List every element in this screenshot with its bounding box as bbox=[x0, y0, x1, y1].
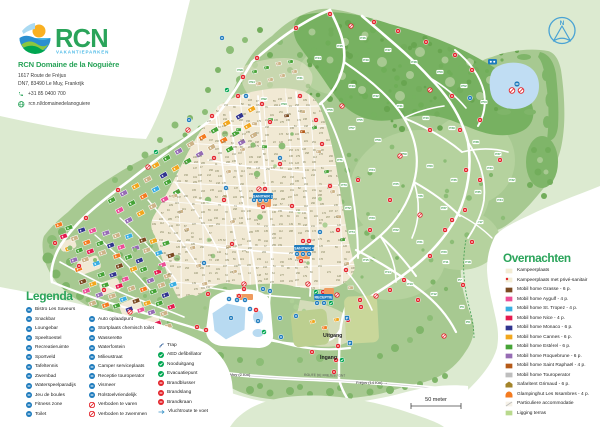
svg-text:230: 230 bbox=[286, 119, 291, 122]
svg-text:284: 284 bbox=[262, 251, 267, 254]
svg-text:P50: P50 bbox=[437, 70, 443, 74]
svg-text:263: 263 bbox=[290, 183, 295, 186]
svg-text:258: 258 bbox=[295, 104, 300, 107]
svg-text:135: 135 bbox=[264, 230, 269, 233]
svg-text:273: 273 bbox=[319, 132, 324, 135]
svg-text:P47: P47 bbox=[385, 48, 391, 52]
svg-text:P: P bbox=[346, 316, 349, 321]
svg-text:101: 101 bbox=[193, 176, 198, 179]
svg-text:276: 276 bbox=[303, 190, 308, 193]
svg-text:P58: P58 bbox=[375, 138, 381, 142]
svg-text:213: 213 bbox=[207, 174, 212, 177]
svg-text:251: 251 bbox=[312, 141, 317, 144]
svg-text:P25: P25 bbox=[393, 182, 399, 186]
svg-text:252: 252 bbox=[289, 252, 294, 255]
svg-text:173: 173 bbox=[279, 133, 284, 136]
svg-text:113: 113 bbox=[313, 156, 317, 159]
svg-text:236: 236 bbox=[247, 210, 252, 213]
svg-text:174: 174 bbox=[297, 119, 302, 122]
svg-text:242: 242 bbox=[214, 217, 219, 220]
svg-text:288: 288 bbox=[289, 230, 294, 233]
svg-text:125: 125 bbox=[319, 245, 324, 248]
svg-text:P98: P98 bbox=[237, 68, 243, 72]
svg-text:298: 298 bbox=[177, 240, 182, 243]
svg-text:119: 119 bbox=[240, 258, 244, 261]
svg-text:253: 253 bbox=[282, 176, 287, 179]
svg-text:244: 244 bbox=[223, 118, 228, 121]
svg-text:234: 234 bbox=[226, 280, 231, 283]
svg-text:255: 255 bbox=[272, 244, 277, 247]
svg-text:P23: P23 bbox=[369, 216, 375, 220]
svg-text:197: 197 bbox=[177, 196, 182, 199]
svg-text:P71: P71 bbox=[337, 158, 343, 162]
svg-text:232: 232 bbox=[321, 121, 326, 124]
svg-text:207: 207 bbox=[256, 111, 261, 114]
svg-text:P8: P8 bbox=[466, 320, 470, 324]
svg-text:266: 266 bbox=[215, 140, 220, 143]
svg-text:285: 285 bbox=[168, 218, 173, 221]
svg-text:P46: P46 bbox=[360, 36, 366, 40]
svg-text:235: 235 bbox=[246, 131, 251, 134]
svg-text:201: 201 bbox=[318, 265, 323, 268]
svg-text:173: 173 bbox=[312, 230, 317, 233]
svg-text:151: 151 bbox=[232, 251, 237, 254]
svg-text:262: 262 bbox=[186, 239, 191, 242]
svg-text:P36: P36 bbox=[451, 178, 457, 182]
svg-text:174: 174 bbox=[295, 149, 300, 152]
svg-text:116: 116 bbox=[326, 139, 330, 142]
svg-text:270: 270 bbox=[194, 288, 199, 291]
svg-text:288: 288 bbox=[226, 161, 231, 164]
svg-text:P48: P48 bbox=[411, 60, 417, 64]
svg-text:P40: P40 bbox=[423, 116, 429, 120]
svg-text:255: 255 bbox=[272, 233, 277, 236]
svg-text:253: 253 bbox=[185, 267, 190, 270]
svg-text:P37: P37 bbox=[495, 152, 501, 156]
svg-text:286: 286 bbox=[248, 247, 253, 250]
svg-text:185: 185 bbox=[320, 203, 325, 206]
svg-text:125: 125 bbox=[176, 246, 181, 249]
svg-text:232: 232 bbox=[249, 173, 254, 176]
svg-text:287: 287 bbox=[328, 170, 333, 173]
svg-text:237: 237 bbox=[191, 209, 196, 212]
svg-text:P31: P31 bbox=[297, 76, 303, 80]
svg-text:169: 169 bbox=[249, 156, 254, 159]
svg-text:165: 165 bbox=[192, 189, 197, 192]
svg-text:179: 179 bbox=[318, 238, 323, 241]
svg-text:P57: P57 bbox=[349, 126, 355, 130]
svg-text:132: 132 bbox=[208, 219, 213, 222]
svg-text:P6: P6 bbox=[460, 305, 464, 309]
svg-text:126: 126 bbox=[343, 245, 348, 248]
svg-text:154: 154 bbox=[224, 104, 229, 107]
svg-text:298: 298 bbox=[233, 208, 238, 211]
svg-text:281: 281 bbox=[248, 146, 253, 149]
svg-text:296: 296 bbox=[240, 183, 245, 186]
svg-text:104: 104 bbox=[198, 155, 203, 158]
svg-text:250: 250 bbox=[314, 280, 319, 283]
svg-text:118: 118 bbox=[304, 205, 308, 208]
svg-text:186: 186 bbox=[312, 161, 317, 164]
svg-text:167: 167 bbox=[198, 180, 203, 183]
svg-text:167: 167 bbox=[262, 140, 267, 143]
svg-text:291: 291 bbox=[160, 231, 165, 234]
svg-text:207: 207 bbox=[295, 279, 300, 282]
svg-text:237: 237 bbox=[222, 125, 227, 128]
svg-text:105: 105 bbox=[274, 119, 279, 122]
svg-text:194: 194 bbox=[232, 153, 237, 156]
svg-text:128: 128 bbox=[302, 148, 307, 151]
svg-text:221: 221 bbox=[304, 140, 309, 143]
svg-text:P: P bbox=[349, 341, 352, 346]
svg-text:181: 181 bbox=[270, 114, 275, 117]
svg-text:120: 120 bbox=[337, 224, 342, 227]
svg-text:175: 175 bbox=[218, 239, 223, 242]
svg-text:215: 215 bbox=[278, 98, 283, 101]
svg-text:150: 150 bbox=[280, 261, 285, 264]
svg-text:241: 241 bbox=[312, 189, 317, 192]
svg-text:290: 290 bbox=[296, 272, 301, 275]
svg-text:233: 233 bbox=[247, 240, 252, 243]
svg-text:Uitgang: Uitgang bbox=[323, 333, 342, 339]
svg-text:260: 260 bbox=[184, 195, 189, 198]
svg-text:206: 206 bbox=[262, 211, 267, 214]
svg-text:P24: P24 bbox=[369, 168, 375, 172]
svg-text:P7: P7 bbox=[458, 278, 462, 282]
svg-text:P72: P72 bbox=[345, 206, 351, 210]
svg-text:290: 290 bbox=[311, 202, 316, 205]
svg-text:141: 141 bbox=[305, 169, 310, 172]
svg-text:163: 163 bbox=[214, 209, 219, 212]
svg-text:P49: P49 bbox=[363, 58, 369, 62]
svg-text:295: 295 bbox=[200, 267, 205, 270]
svg-text:50 meter: 50 meter bbox=[425, 397, 447, 403]
svg-text:P35: P35 bbox=[475, 190, 481, 194]
svg-text:200: 200 bbox=[312, 251, 317, 254]
svg-text:197: 197 bbox=[209, 139, 214, 142]
svg-text:171: 171 bbox=[302, 177, 307, 180]
svg-text:274: 274 bbox=[334, 216, 339, 219]
svg-text:288: 288 bbox=[239, 119, 244, 122]
svg-text:267: 267 bbox=[326, 216, 331, 219]
svg-text:219: 219 bbox=[257, 258, 262, 261]
svg-text:187: 187 bbox=[215, 148, 220, 151]
svg-text:268: 268 bbox=[281, 198, 286, 201]
svg-text:209: 209 bbox=[193, 181, 198, 184]
svg-text:299: 299 bbox=[305, 230, 310, 233]
svg-text:231: 231 bbox=[289, 280, 294, 283]
svg-text:VAKANTIEPARKEN: VAKANTIEPARKEN bbox=[56, 50, 109, 55]
svg-text:129: 129 bbox=[177, 211, 182, 214]
svg-text:156: 156 bbox=[184, 174, 189, 177]
svg-text:165: 165 bbox=[215, 170, 220, 173]
svg-text:222: 222 bbox=[159, 218, 164, 221]
svg-text:165: 165 bbox=[295, 180, 300, 183]
svg-text:266: 266 bbox=[280, 190, 285, 193]
svg-text:188: 188 bbox=[242, 113, 247, 116]
svg-text:143: 143 bbox=[264, 278, 269, 281]
svg-text:298: 298 bbox=[305, 152, 310, 155]
svg-text:132: 132 bbox=[302, 212, 307, 215]
svg-text:P22: P22 bbox=[393, 228, 399, 232]
svg-text:123: 123 bbox=[295, 162, 300, 165]
svg-text:P38: P38 bbox=[473, 140, 479, 144]
svg-text:183: 183 bbox=[280, 280, 285, 283]
svg-text:129: 129 bbox=[330, 231, 335, 234]
svg-text:P93: P93 bbox=[281, 102, 287, 106]
svg-text:174: 174 bbox=[239, 202, 244, 205]
svg-text:271: 271 bbox=[175, 216, 180, 219]
svg-text:164: 164 bbox=[289, 211, 294, 214]
svg-text:205: 205 bbox=[247, 264, 252, 267]
svg-text:106: 106 bbox=[194, 272, 199, 275]
svg-text:128: 128 bbox=[239, 222, 244, 225]
svg-text:167: 167 bbox=[209, 225, 214, 228]
svg-text:226: 226 bbox=[201, 211, 206, 214]
svg-text:P18: P18 bbox=[465, 260, 471, 264]
svg-text:184: 184 bbox=[208, 239, 213, 242]
svg-text:153: 153 bbox=[290, 176, 295, 179]
svg-text:P11: P11 bbox=[443, 260, 449, 264]
svg-text:123: 123 bbox=[272, 190, 277, 193]
svg-text:261: 261 bbox=[216, 223, 221, 226]
svg-text:189: 189 bbox=[225, 259, 230, 262]
svg-text:176: 176 bbox=[222, 182, 227, 185]
svg-text:160: 160 bbox=[182, 246, 187, 249]
svg-text:245: 245 bbox=[334, 204, 339, 207]
svg-text:181: 181 bbox=[216, 268, 221, 271]
svg-text:184: 184 bbox=[201, 287, 206, 290]
svg-text:119: 119 bbox=[182, 208, 186, 211]
svg-text:155: 155 bbox=[278, 210, 283, 213]
svg-text:P94: P94 bbox=[249, 80, 255, 84]
svg-text:193: 193 bbox=[298, 232, 303, 235]
svg-text:296: 296 bbox=[209, 169, 214, 172]
svg-text:P32: P32 bbox=[509, 178, 515, 182]
svg-text:149: 149 bbox=[289, 223, 294, 226]
svg-text:275: 275 bbox=[280, 121, 285, 124]
svg-text:122: 122 bbox=[294, 194, 299, 197]
svg-text:185: 185 bbox=[185, 279, 190, 282]
svg-text:181: 181 bbox=[338, 239, 343, 242]
svg-text:P74: P74 bbox=[349, 230, 355, 234]
svg-text:209: 209 bbox=[328, 175, 333, 178]
svg-text:279: 279 bbox=[296, 155, 301, 158]
svg-text:123: 123 bbox=[174, 232, 179, 235]
svg-text:RECEPTIE: RECEPTIE bbox=[315, 295, 334, 299]
svg-text:223: 223 bbox=[223, 132, 228, 135]
svg-text:253: 253 bbox=[289, 149, 294, 152]
svg-text:250: 250 bbox=[266, 168, 271, 171]
svg-text:167: 167 bbox=[223, 265, 228, 268]
svg-text:260: 260 bbox=[329, 155, 334, 158]
svg-text:288: 288 bbox=[318, 194, 323, 197]
svg-text:277: 277 bbox=[280, 274, 285, 277]
svg-text:197: 197 bbox=[329, 210, 334, 213]
svg-text:112: 112 bbox=[279, 230, 283, 233]
svg-text:112: 112 bbox=[160, 222, 164, 225]
svg-text:156: 156 bbox=[246, 120, 251, 123]
svg-text:P55: P55 bbox=[357, 118, 363, 122]
svg-text:P41: P41 bbox=[397, 104, 403, 108]
svg-text:285: 285 bbox=[233, 146, 238, 149]
svg-text:P34: P34 bbox=[497, 198, 503, 202]
svg-text:SANITAIR 2: SANITAIR 2 bbox=[253, 194, 273, 198]
svg-text:229: 229 bbox=[169, 204, 174, 207]
svg-text:198: 198 bbox=[273, 204, 278, 207]
svg-text:114: 114 bbox=[241, 170, 245, 173]
svg-text:152: 152 bbox=[336, 279, 341, 282]
svg-text:P56: P56 bbox=[327, 108, 333, 112]
svg-text:203: 203 bbox=[194, 161, 199, 164]
svg-text:P12: P12 bbox=[431, 292, 437, 296]
svg-text:148: 148 bbox=[257, 274, 262, 277]
svg-text:213: 213 bbox=[311, 174, 316, 177]
svg-text:P73: P73 bbox=[341, 183, 347, 187]
svg-text:269: 269 bbox=[175, 258, 180, 261]
svg-text:P21: P21 bbox=[417, 240, 423, 244]
svg-text:142: 142 bbox=[206, 265, 211, 268]
svg-text:163: 163 bbox=[240, 139, 245, 142]
svg-text:206: 206 bbox=[218, 152, 223, 155]
svg-text:241: 241 bbox=[311, 225, 316, 228]
svg-text:255: 255 bbox=[320, 127, 325, 130]
svg-text:P27: P27 bbox=[441, 206, 447, 210]
svg-text:177: 177 bbox=[305, 132, 310, 135]
svg-text:224: 224 bbox=[218, 190, 223, 193]
svg-text:223: 223 bbox=[248, 99, 253, 102]
svg-text:110: 110 bbox=[176, 224, 180, 227]
svg-text:SANITAIR 4: SANITAIR 4 bbox=[294, 246, 314, 250]
svg-text:205: 205 bbox=[249, 231, 254, 234]
svg-text:143: 143 bbox=[256, 167, 261, 170]
svg-text:P43: P43 bbox=[349, 84, 355, 88]
svg-text:232: 232 bbox=[208, 254, 213, 257]
svg-text:P60: P60 bbox=[427, 164, 433, 168]
svg-text:167: 167 bbox=[238, 152, 243, 155]
svg-text:276: 276 bbox=[319, 153, 324, 156]
svg-text:198: 198 bbox=[304, 125, 309, 128]
svg-text:153: 153 bbox=[321, 251, 326, 254]
svg-text:158: 158 bbox=[265, 126, 270, 129]
svg-text:203: 203 bbox=[201, 190, 206, 193]
svg-text:107: 107 bbox=[177, 266, 182, 269]
svg-text:136: 136 bbox=[289, 155, 294, 158]
svg-text:211: 211 bbox=[279, 223, 283, 226]
svg-text:225: 225 bbox=[183, 162, 188, 165]
svg-text:238: 238 bbox=[303, 118, 308, 121]
svg-text:P92: P92 bbox=[261, 97, 267, 101]
svg-text:218: 218 bbox=[303, 224, 308, 227]
svg-text:204: 204 bbox=[288, 139, 293, 142]
svg-text:179: 179 bbox=[249, 190, 254, 193]
svg-text:261: 261 bbox=[312, 169, 317, 172]
svg-text:289: 289 bbox=[230, 135, 235, 138]
svg-text:167: 167 bbox=[272, 237, 277, 240]
svg-text:162: 162 bbox=[337, 261, 342, 264]
svg-text:P13: P13 bbox=[407, 282, 413, 286]
svg-text:244: 244 bbox=[263, 266, 268, 269]
svg-text:204: 204 bbox=[304, 183, 309, 186]
svg-text:P45: P45 bbox=[337, 44, 343, 48]
svg-text:202: 202 bbox=[274, 104, 279, 107]
svg-text:192: 192 bbox=[264, 240, 269, 243]
svg-text:210: 210 bbox=[193, 196, 198, 199]
svg-text:183: 183 bbox=[288, 97, 293, 100]
svg-text:142: 142 bbox=[239, 217, 244, 220]
svg-text:172: 172 bbox=[322, 212, 327, 215]
svg-text:259: 259 bbox=[258, 280, 263, 283]
svg-text:224: 224 bbox=[233, 196, 238, 199]
svg-text:232: 232 bbox=[168, 273, 173, 276]
svg-text:115: 115 bbox=[175, 202, 179, 205]
svg-text:159: 159 bbox=[278, 244, 283, 247]
svg-text:170: 170 bbox=[271, 167, 276, 170]
svg-text:238: 238 bbox=[215, 259, 220, 262]
svg-text:147: 147 bbox=[247, 218, 252, 221]
svg-text:161: 161 bbox=[177, 180, 182, 183]
svg-text:169: 169 bbox=[152, 223, 157, 226]
svg-text:147: 147 bbox=[193, 167, 198, 170]
svg-text:134: 134 bbox=[218, 175, 223, 178]
svg-text:181: 181 bbox=[254, 219, 259, 222]
svg-text:218: 218 bbox=[216, 182, 221, 185]
svg-text:134: 134 bbox=[169, 225, 174, 228]
svg-text:263: 263 bbox=[312, 197, 317, 200]
svg-text:P44: P44 bbox=[315, 56, 321, 60]
svg-text:161: 161 bbox=[290, 189, 295, 192]
svg-text:286: 286 bbox=[201, 162, 206, 165]
svg-text:223: 223 bbox=[288, 168, 293, 171]
svg-text:P20: P20 bbox=[441, 250, 447, 254]
svg-text:260: 260 bbox=[248, 140, 253, 143]
svg-text:135: 135 bbox=[295, 167, 300, 170]
svg-text:P39: P39 bbox=[449, 126, 455, 130]
svg-text:224: 224 bbox=[314, 215, 319, 218]
svg-text:142: 142 bbox=[217, 251, 222, 254]
svg-text:211: 211 bbox=[264, 225, 268, 228]
svg-text:251: 251 bbox=[279, 111, 284, 114]
svg-text:237: 237 bbox=[288, 196, 293, 199]
svg-text:Ingang: Ingang bbox=[320, 355, 337, 361]
svg-text:215: 215 bbox=[210, 189, 215, 192]
svg-text:193: 193 bbox=[159, 239, 164, 242]
svg-text:187: 187 bbox=[192, 223, 197, 226]
svg-text:149: 149 bbox=[192, 282, 197, 285]
svg-text:P42: P42 bbox=[373, 94, 379, 98]
svg-text:238: 238 bbox=[254, 161, 259, 164]
svg-text:146: 146 bbox=[201, 202, 206, 205]
svg-text:239: 239 bbox=[287, 113, 292, 116]
svg-text:163: 163 bbox=[346, 251, 351, 254]
svg-text:186: 186 bbox=[265, 134, 270, 137]
svg-text:224: 224 bbox=[295, 133, 300, 136]
svg-text:164: 164 bbox=[225, 156, 230, 159]
svg-text:198: 198 bbox=[257, 156, 262, 159]
svg-text:P33: P33 bbox=[487, 166, 493, 170]
svg-text:210: 210 bbox=[296, 209, 301, 212]
svg-text:154: 154 bbox=[247, 167, 252, 170]
svg-text:259: 259 bbox=[240, 196, 245, 199]
svg-text:252: 252 bbox=[222, 141, 227, 144]
svg-text:105: 105 bbox=[255, 230, 260, 233]
svg-text:271: 271 bbox=[327, 271, 332, 274]
svg-text:107: 107 bbox=[238, 244, 243, 247]
svg-text:108: 108 bbox=[198, 174, 203, 177]
svg-text:P53: P53 bbox=[481, 100, 487, 104]
svg-text:Fréjus (14 Km) →: Fréjus (14 Km) → bbox=[356, 380, 388, 385]
svg-text:128: 128 bbox=[337, 275, 342, 278]
